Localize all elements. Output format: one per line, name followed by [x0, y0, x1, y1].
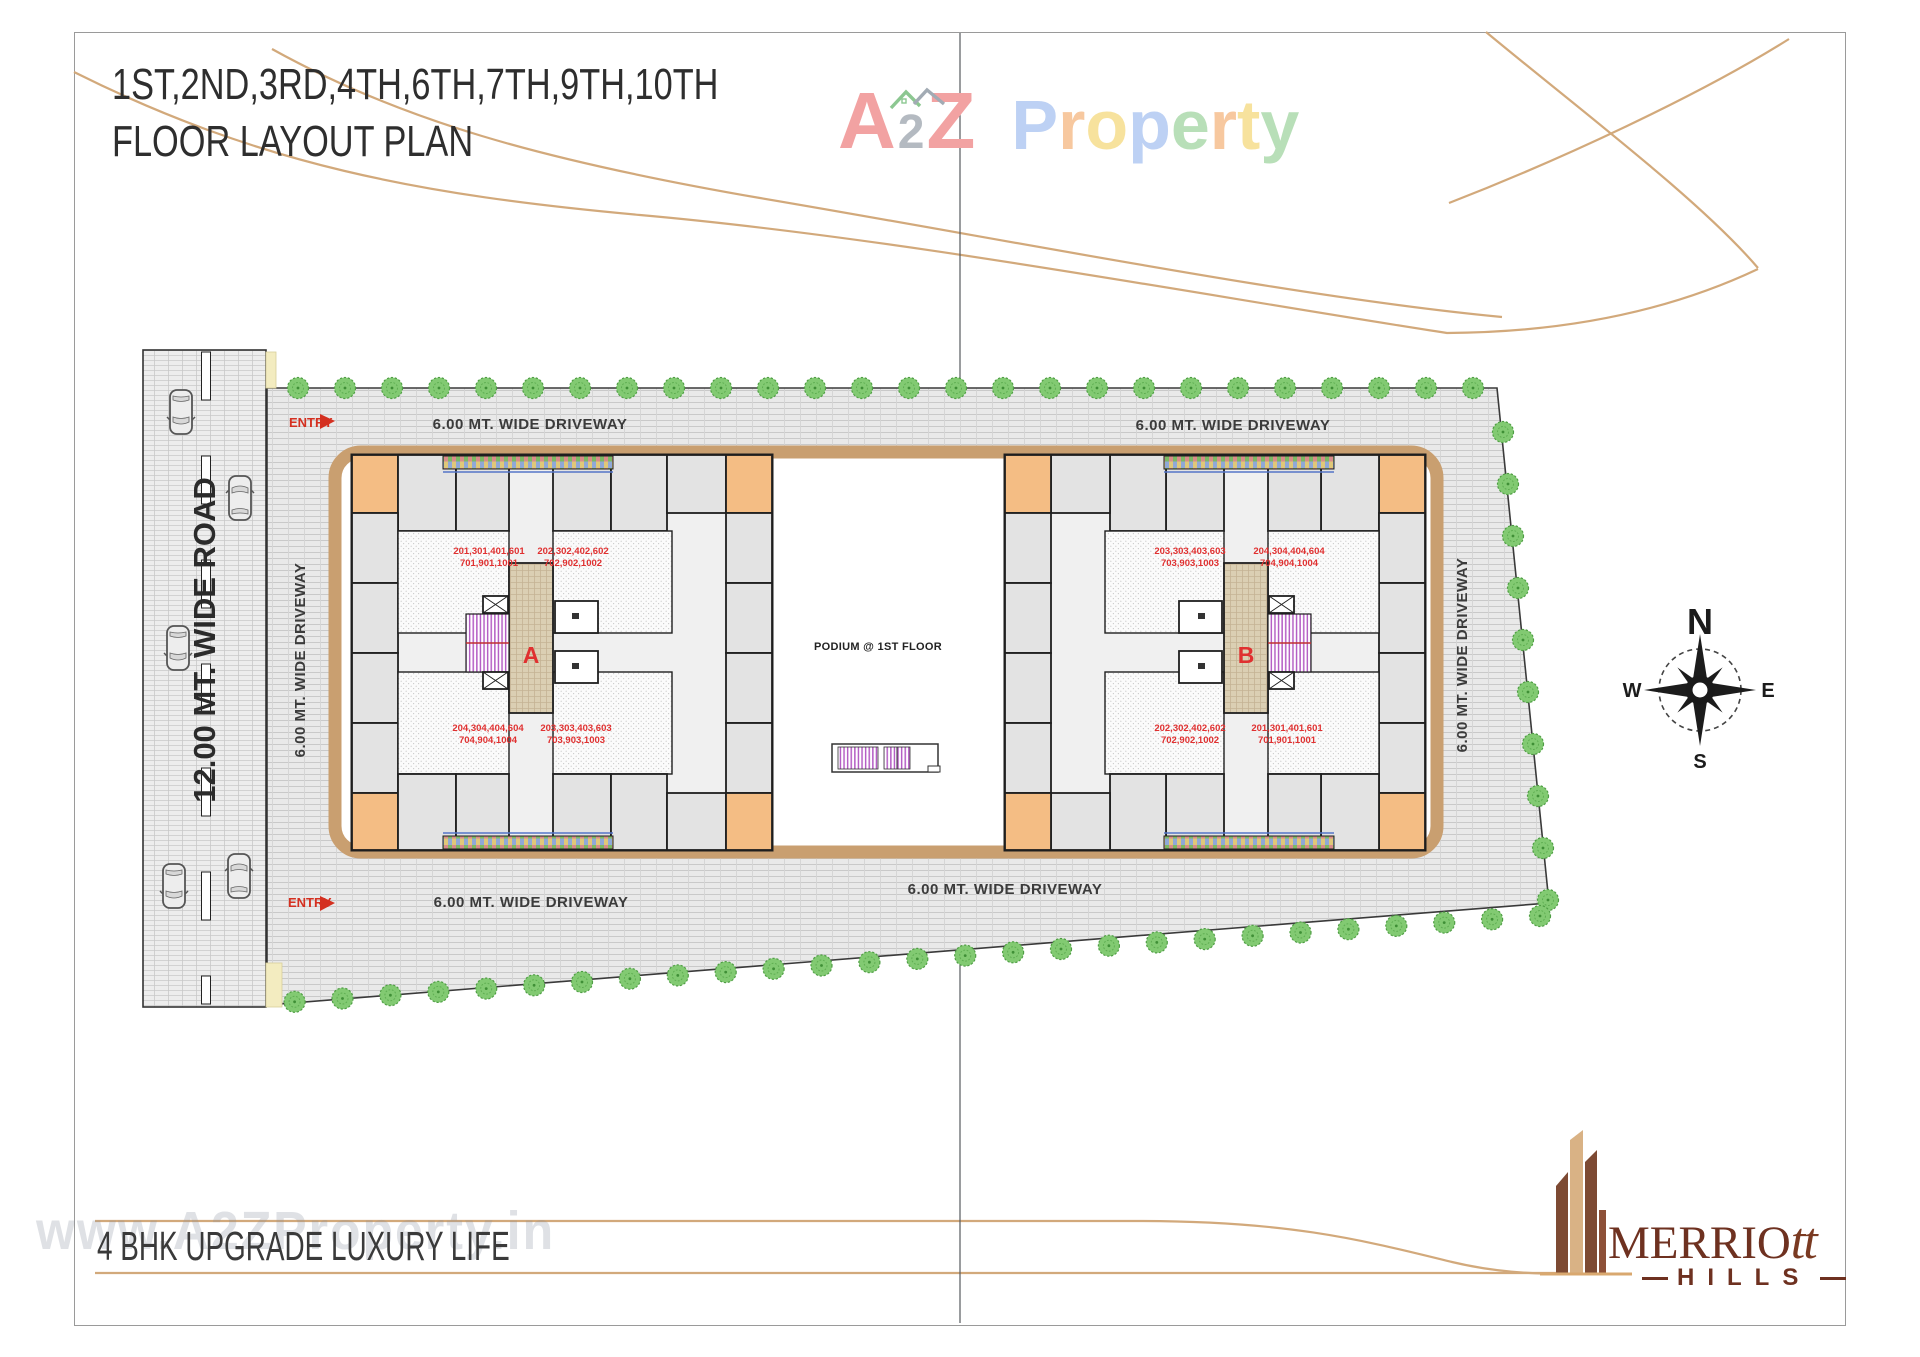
tower-a-letter: A [523, 642, 540, 668]
compass-south: S [1693, 751, 1706, 773]
driveway-label-left-vertical: 6.00 MT. WIDE DRIVEWAY [292, 563, 309, 758]
svg-text:702,902,1002: 702,902,1002 [544, 558, 602, 569]
entry-top: ENTRY [289, 414, 335, 430]
merriott-logo-name: MERRIOtt [1608, 1212, 1816, 1271]
tower-b-rooms [1005, 455, 1425, 850]
svg-text:701,901,1001: 701,901,1001 [1258, 735, 1317, 746]
house-roof-icon [888, 82, 950, 112]
driveway-label-top-left: 6.00 MT. WIDE DRIVEWAY [433, 416, 628, 433]
svg-text:202,302,402,602: 202,302,402,602 [537, 546, 608, 557]
compass-east: E [1761, 680, 1774, 702]
hills-dash-right [1820, 1277, 1846, 1280]
driveway-label-top-right: 6.00 MT. WIDE DRIVEWAY [1136, 417, 1331, 434]
svg-text:702,902,1002: 702,902,1002 [1161, 735, 1219, 746]
merriott-name-main: MERRIO [1608, 1217, 1791, 1269]
driveway-label-bottom-left: 6.00 MT. WIDE DRIVEWAY [434, 894, 629, 911]
road-label: 12.00 MT. WIDE ROAD [187, 477, 222, 803]
site-plan-drawing: A B 201,301,401,601 701,901,1001 202,302… [0, 0, 1920, 1357]
podium-label: PODIUM @ 1ST FLOOR [814, 641, 942, 653]
merriott-name-tail: tt [1791, 1213, 1816, 1270]
svg-text:704,904,1004: 704,904,1004 [1260, 558, 1319, 569]
svg-text:704,904,1004: 704,904,1004 [459, 735, 518, 746]
compass-north: N [1687, 601, 1713, 642]
svg-text:203,303,403,603: 203,303,403,603 [1154, 546, 1225, 557]
entry-bottom: ENTRY [288, 895, 335, 911]
svg-text:204,304,404,604: 204,304,404,604 [1253, 546, 1325, 557]
page: 1ST,2ND,3RD,4TH,6TH,7TH,9TH,10TH FLOOR L… [0, 0, 1920, 1357]
a2z-letter-2: 2 [898, 106, 925, 159]
tower-a-rooms [352, 455, 772, 850]
driveway-label-right-vertical: 6.00 MT. WIDE DRIVEWAY [1454, 558, 1471, 753]
podium-stair [832, 744, 940, 772]
tower-b-letter: B [1238, 642, 1255, 668]
page-title: 1ST,2ND,3RD,4TH,6TH,7TH,9TH,10TH FLOOR L… [112, 56, 718, 170]
hills-dash-left [1642, 1277, 1668, 1280]
svg-text:201,301,401,601: 201,301,401,601 [453, 546, 525, 557]
svg-text:701,901,1001: 701,901,1001 [460, 558, 519, 569]
svg-text:201,301,401,601: 201,301,401,601 [1251, 723, 1323, 734]
a2z-property-word: P r o p e r t y [1011, 94, 1299, 156]
svg-text:703,903,1003: 703,903,1003 [547, 735, 605, 746]
svg-text:204,304,404,604: 204,304,404,604 [452, 723, 524, 734]
a2z-property-logo: A 2 Z P r o p e r t y [838, 86, 1299, 156]
driveway-label-bottom-right: 6.00 MT. WIDE DRIVEWAY [908, 881, 1103, 898]
merriott-logo-sub: HILLS [1642, 1264, 1846, 1292]
title-line-1: 1ST,2ND,3RD,4TH,6TH,7TH,9TH,10TH [112, 56, 718, 113]
compass-rose-icon: N S W E [1623, 601, 1775, 773]
svg-text:202,302,402,602: 202,302,402,602 [1154, 723, 1225, 734]
merriott-hills-label: HILLS [1677, 1264, 1811, 1292]
title-line-2: FLOOR LAYOUT PLAN [112, 113, 718, 170]
svg-text:203,303,403,603: 203,303,403,603 [540, 723, 611, 734]
compass-west: W [1623, 680, 1642, 702]
tagline: 4 BHK UPGRADE LUXURY LIFE [97, 1226, 510, 1267]
svg-text:703,903,1003: 703,903,1003 [1161, 558, 1219, 569]
